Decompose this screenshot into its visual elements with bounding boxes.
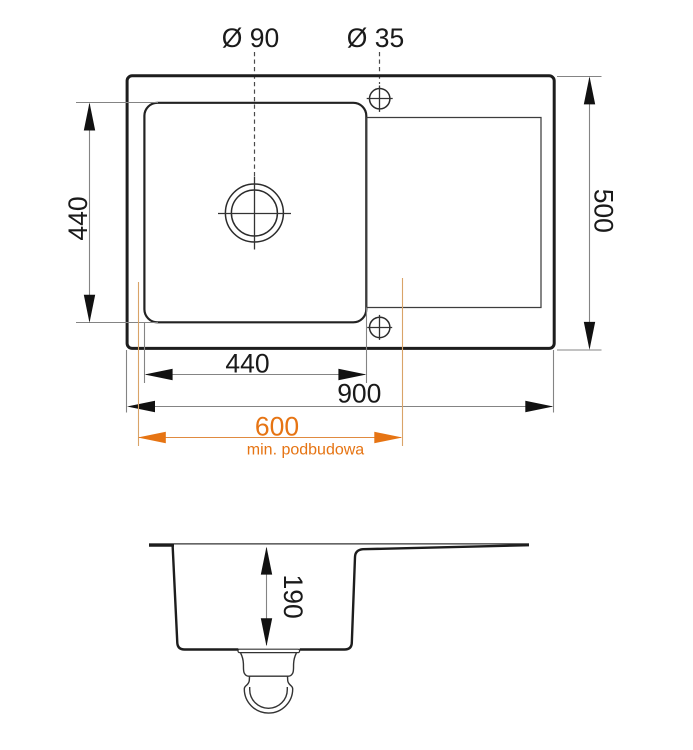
svg-text:500: 500 bbox=[589, 189, 619, 233]
svg-text:Ø 90: Ø 90 bbox=[222, 23, 279, 53]
svg-text:600: 600 bbox=[255, 412, 299, 442]
svg-text:min. podbudowa: min. podbudowa bbox=[247, 441, 365, 458]
svg-text:Ø 35: Ø 35 bbox=[347, 23, 404, 53]
svg-text:190: 190 bbox=[278, 574, 308, 618]
svg-text:900: 900 bbox=[337, 379, 381, 409]
svg-text:440: 440 bbox=[63, 196, 93, 240]
svg-text:440: 440 bbox=[225, 348, 269, 378]
